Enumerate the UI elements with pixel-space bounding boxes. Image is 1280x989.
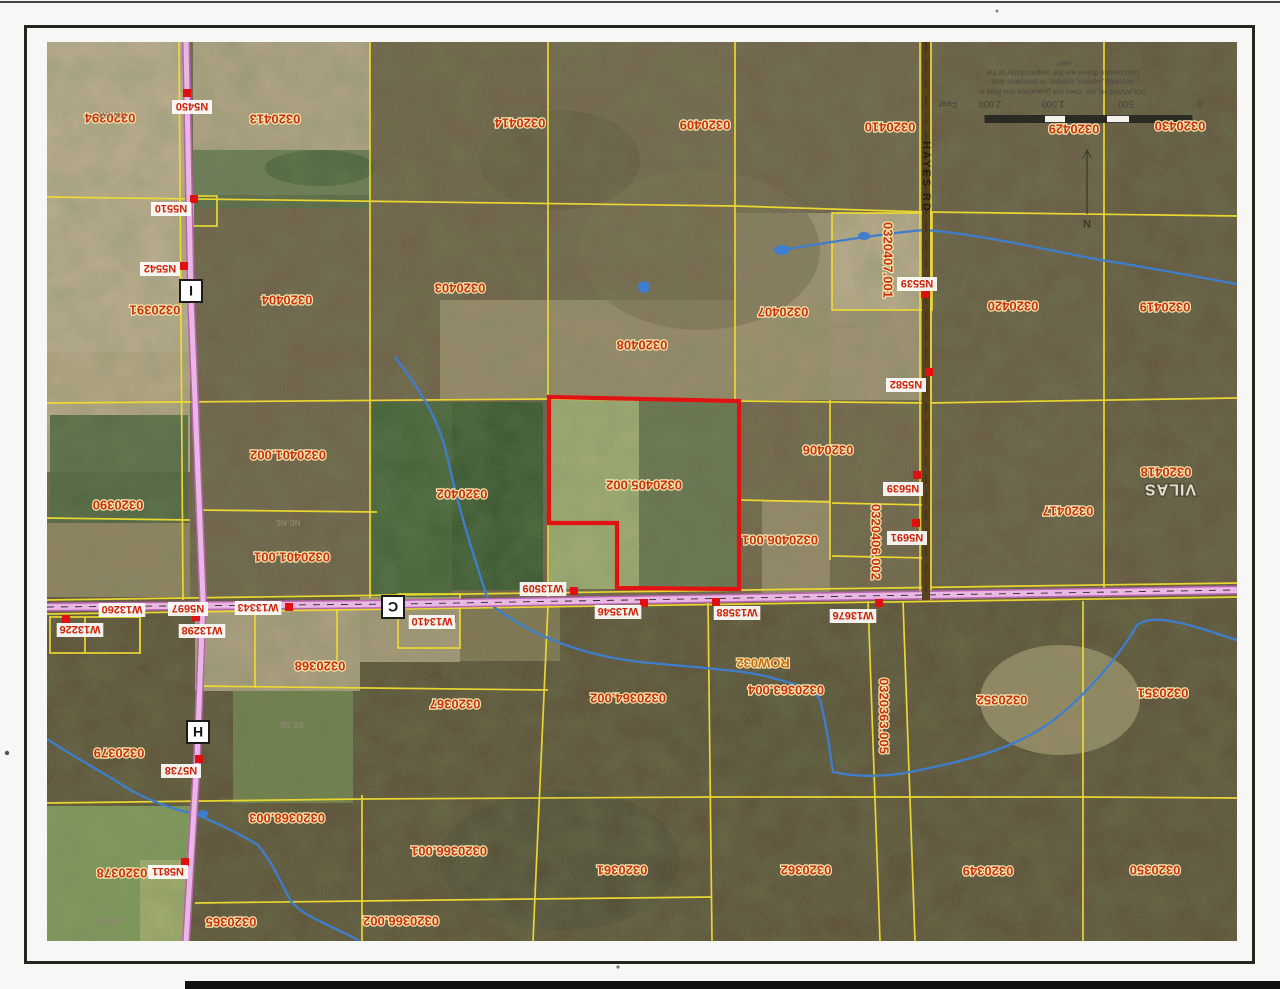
parcel-id-label: 0320364.002	[590, 690, 666, 705]
parcel-id-label: 0320391	[130, 302, 181, 317]
address-label: W13298	[182, 624, 223, 636]
parcel-id-label: 0320350	[1130, 862, 1181, 877]
scale-bar-number: 500	[1118, 99, 1133, 109]
parcel-id-label: 0320366.002	[363, 913, 439, 928]
survey-point-square	[570, 587, 578, 595]
disclaimer-line: accurate, correct, current, or complete …	[992, 77, 1133, 86]
parcel-id-label: 0320368	[295, 658, 346, 673]
section-quarter-label: NE-NW	[94, 916, 122, 925]
parcel-id-label: 0320417	[1043, 503, 1094, 518]
survey-point-square	[912, 519, 920, 527]
address-label: W13260	[102, 603, 143, 615]
scan-speck	[996, 10, 999, 13]
parcel-map-svg: Feet2,0001,0005000 user.conclusions draw…	[0, 0, 1280, 989]
parcel-id-label: 0320409	[680, 117, 731, 132]
scan-speck	[5, 751, 9, 755]
disclaimer-line: SOLA/VER HI, Inc. does not guarantee thi…	[979, 87, 1147, 96]
parcel-id-label: 0320378	[97, 865, 148, 880]
parcel-id-label: 0320413	[250, 111, 301, 126]
parcel-id-label: 0320367	[430, 696, 481, 711]
section-quarter-label: SW-NW	[830, 321, 859, 330]
road-shield-letter: I	[189, 283, 193, 299]
survey-point-square	[925, 368, 933, 376]
address-label: N5450	[176, 100, 208, 112]
address-label: N5582	[890, 378, 922, 390]
scan-bottom-strip	[185, 981, 1280, 989]
disclaimer-line: user.	[1055, 59, 1071, 68]
section-quarter-label: SE-SE	[279, 720, 304, 729]
section-quarter-label: SW-NE	[464, 320, 491, 329]
parcel-id-label: 0320410	[865, 119, 916, 134]
parcel-id-label: 0320379	[94, 745, 145, 760]
parcel-id-label: 0320390	[93, 497, 144, 512]
scan-speck	[616, 965, 619, 968]
parcel-id-label-vertical: 0320363.005	[876, 678, 891, 754]
parcel-id-label: 0320351	[1138, 685, 1189, 700]
address-label: N5691	[891, 531, 923, 543]
scale-bar-number: 0	[1197, 99, 1202, 109]
address-label: N5697	[172, 602, 204, 614]
parcel-id-label: 0320366.001	[411, 843, 487, 858]
map-area: Feet2,0001,0005000 user.conclusions draw…	[47, 42, 1237, 941]
survey-point-square	[183, 89, 191, 97]
survey-point-square	[285, 603, 293, 611]
section-quarter-label: NW-SW	[97, 110, 126, 119]
address-label: N5510	[155, 202, 187, 214]
parcel-id-label: 0320420	[988, 298, 1039, 313]
north-arrow-label: N	[1083, 217, 1091, 229]
address-label: W13343	[238, 601, 279, 613]
parcel-id-label-vertical: 0320407.001	[880, 222, 895, 298]
scale-bar-number: 2,000	[979, 99, 1002, 109]
survey-point-square	[921, 290, 929, 298]
survey-point-square	[712, 598, 720, 606]
scale-bar-number: 1,000	[1042, 99, 1065, 109]
road-name-label: HAYES RD	[920, 141, 932, 213]
address-label: W13410	[412, 615, 453, 627]
parcel-id-label: 0320363.004	[747, 682, 824, 697]
address-label: W13676	[833, 609, 874, 621]
address-label: W13546	[598, 605, 639, 617]
row-label: ROW032	[736, 655, 789, 670]
parcel-id-label: 0320406.001	[742, 532, 818, 547]
parcel-id-label: 0320401.001	[254, 549, 330, 564]
address-label: N5539	[901, 277, 933, 289]
parcel-id-label: 0320404	[261, 292, 312, 307]
address-label: W13588	[717, 606, 758, 618]
parcel-id-label: 0320418	[1141, 464, 1192, 479]
parcel-id-label: 0320406	[803, 442, 854, 457]
parcel-id-label: 0320349	[963, 863, 1014, 878]
parcel-id-label: 0320408	[617, 337, 668, 352]
parcel-id-label: 0320365	[206, 914, 257, 929]
survey-point-square	[195, 755, 203, 763]
road-shield-letter: C	[388, 599, 398, 615]
survey-point-square	[875, 599, 883, 607]
parcel-id-label: 0320419	[1140, 299, 1191, 314]
road-shield-letter: H	[193, 724, 203, 740]
parcel-id-label: 0320414	[494, 115, 545, 130]
survey-point-square	[181, 858, 189, 866]
parcel-id-label-vertical: 0320406.002	[868, 504, 883, 580]
parcel-id-label: 0320429	[1049, 121, 1100, 136]
disclaimer-line: conclusions drawn are the responsibility…	[986, 68, 1139, 77]
survey-point-square	[180, 262, 188, 270]
parcel-id-label: 0320401.002	[250, 447, 326, 462]
parcel-id-label: 0320407	[758, 304, 809, 319]
parcel-id-label: 0320352	[977, 692, 1028, 707]
section-quarter-label: NE-NE	[275, 518, 301, 527]
parcel-id-label: 0320403	[435, 280, 486, 295]
survey-point-square	[190, 195, 198, 203]
address-label: N5811	[152, 865, 184, 877]
scan-edge-line	[0, 1, 1280, 3]
address-label: N5738	[165, 764, 197, 776]
parcel-id-label: 0320368.003	[249, 810, 325, 825]
parcel-id-label: 0320362	[781, 862, 832, 877]
county-name-label: VILAS	[1144, 480, 1196, 497]
survey-point-square	[62, 615, 70, 623]
address-label: N5542	[144, 262, 176, 274]
parcel-id-label: 0320402	[437, 486, 488, 501]
parcel-id-label: 0320361	[597, 862, 648, 877]
address-label: W13226	[60, 623, 101, 635]
parcel-id-label: 0320405.002	[606, 477, 682, 492]
parcel-id-label: 0320430	[1155, 118, 1206, 133]
scale-bar-number: Feet	[938, 99, 957, 109]
scanned-parcel-map-page: Feet2,0001,0005000 user.conclusions draw…	[0, 0, 1280, 989]
address-label: W13509	[523, 582, 564, 594]
survey-point-square	[913, 471, 921, 479]
address-label: N5639	[887, 482, 919, 494]
